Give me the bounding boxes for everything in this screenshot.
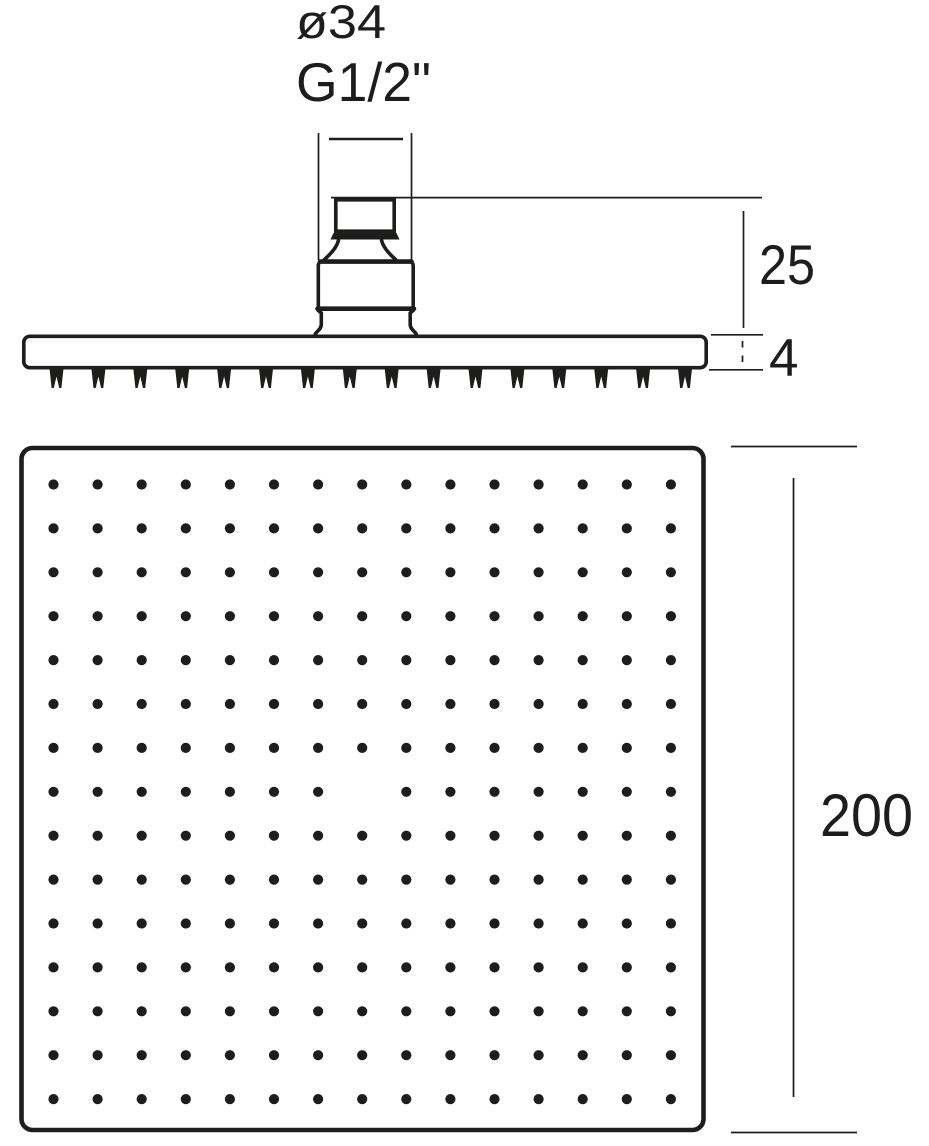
thread-nipple	[336, 200, 394, 231]
spray-hole	[181, 831, 191, 841]
spray-hole	[313, 1094, 323, 1104]
spray-hole	[181, 743, 191, 753]
spray-hole	[48, 1006, 58, 1016]
spray-hole	[313, 787, 323, 797]
spray-hole	[225, 699, 235, 709]
spray-hole	[225, 611, 235, 621]
spray-hole	[269, 831, 279, 841]
spray-hole	[269, 479, 279, 489]
spray-hole	[225, 523, 235, 533]
spray-hole	[622, 479, 632, 489]
spray-hole	[489, 962, 499, 972]
spray-hole	[137, 479, 147, 489]
spray-hole	[666, 831, 676, 841]
spray-hole	[401, 523, 411, 533]
spray-hole	[534, 875, 544, 885]
spray-hole	[445, 611, 455, 621]
spray-hole	[357, 1050, 367, 1060]
nozzle	[175, 369, 189, 389]
spray-hole	[269, 699, 279, 709]
spray-hole	[622, 831, 632, 841]
spray-hole	[666, 611, 676, 621]
spray-hole	[489, 1050, 499, 1060]
spray-hole	[489, 1006, 499, 1016]
spray-hole	[578, 699, 588, 709]
spray-hole	[137, 918, 147, 928]
drawing-canvas: ø34 G1/2" 25 4 200	[0, 0, 929, 1146]
nozzle	[301, 369, 315, 389]
spray-hole	[578, 479, 588, 489]
spray-hole	[489, 918, 499, 928]
spray-hole	[622, 1050, 632, 1060]
spray-hole	[48, 655, 58, 665]
spray-hole	[622, 962, 632, 972]
spray-hole	[578, 611, 588, 621]
spray-hole	[93, 523, 103, 533]
spray-hole	[445, 918, 455, 928]
plate-thickness-label: 4	[769, 329, 798, 388]
spray-hole	[225, 918, 235, 928]
spray-hole	[225, 1094, 235, 1104]
spray-hole	[666, 875, 676, 885]
spray-hole	[622, 1006, 632, 1016]
spray-hole	[181, 787, 191, 797]
spray-hole	[489, 787, 499, 797]
spray-hole	[93, 787, 103, 797]
diameter-extension-lines	[319, 133, 412, 260]
technical-drawing: ø34 G1/2" 25 4 200	[0, 0, 929, 1146]
spray-hole	[225, 875, 235, 885]
spray-hole	[357, 567, 367, 577]
spray-hole	[269, 787, 279, 797]
spray-hole	[269, 523, 279, 533]
base-shoulder-right	[411, 262, 413, 307]
spray-hole	[48, 611, 58, 621]
spray-hole	[93, 962, 103, 972]
spray-hole	[489, 479, 499, 489]
spray-hole	[48, 523, 58, 533]
spray-hole	[534, 1006, 544, 1016]
spray-hole	[401, 743, 411, 753]
base-shoulder-left	[318, 262, 320, 307]
spray-hole	[313, 523, 323, 533]
spray-hole	[225, 743, 235, 753]
spray-hole	[225, 479, 235, 489]
base-foot-left	[315, 311, 321, 335]
spray-hole	[666, 1094, 676, 1104]
spray-hole	[48, 743, 58, 753]
spray-hole	[48, 875, 58, 885]
spray-hole	[401, 699, 411, 709]
spray-hole	[313, 699, 323, 709]
spray-hole	[622, 743, 632, 753]
spray-hole	[445, 743, 455, 753]
spray-hole	[578, 875, 588, 885]
spray-hole	[401, 918, 411, 928]
spray-hole	[48, 479, 58, 489]
spray-hole	[48, 1050, 58, 1060]
spray-hole	[489, 567, 499, 577]
spray-hole	[622, 875, 632, 885]
spray-hole	[666, 962, 676, 972]
spray-hole	[269, 611, 279, 621]
spray-hole	[93, 1050, 103, 1060]
spray-hole	[445, 787, 455, 797]
spray-hole	[578, 962, 588, 972]
spray-hole	[225, 1006, 235, 1016]
spray-hole	[401, 611, 411, 621]
spray-hole	[313, 831, 323, 841]
spray-hole	[445, 1094, 455, 1104]
nozzle	[385, 369, 399, 389]
nozzle	[510, 369, 524, 389]
spray-hole	[489, 699, 499, 709]
spray-plate-side	[24, 336, 706, 367]
spray-hole	[401, 1050, 411, 1060]
spray-hole	[401, 567, 411, 577]
thread-label: G1/2"	[296, 51, 431, 113]
spray-hole	[48, 962, 58, 972]
nozzle	[469, 369, 483, 389]
spray-hole	[578, 1006, 588, 1016]
spray-hole	[622, 1094, 632, 1104]
spray-hole	[181, 611, 191, 621]
spray-hole	[137, 962, 147, 972]
spray-hole	[489, 655, 499, 665]
spray-hole	[534, 655, 544, 665]
spray-hole	[93, 918, 103, 928]
spray-hole	[401, 787, 411, 797]
spray-hole	[357, 743, 367, 753]
spray-hole	[445, 567, 455, 577]
spray-hole	[666, 1006, 676, 1016]
spray-hole	[534, 523, 544, 533]
spray-hole	[622, 523, 632, 533]
spray-hole	[269, 962, 279, 972]
spray-hole	[534, 743, 544, 753]
spray-hole	[137, 699, 147, 709]
spray-hole	[137, 831, 147, 841]
spray-hole	[313, 1050, 323, 1060]
spray-hole	[578, 1094, 588, 1104]
spray-hole	[445, 699, 455, 709]
spray-hole	[489, 743, 499, 753]
spray-hole	[578, 655, 588, 665]
spray-face-outline	[22, 448, 704, 1130]
nozzle	[678, 369, 692, 389]
spray-hole	[269, 1050, 279, 1060]
spray-hole	[401, 655, 411, 665]
thread-flange	[331, 233, 400, 240]
plan-view	[22, 447, 858, 1133]
spray-hole	[666, 743, 676, 753]
spray-hole	[137, 567, 147, 577]
spray-hole	[401, 962, 411, 972]
spray-hole	[534, 479, 544, 489]
nozzle	[552, 369, 566, 389]
spray-hole	[181, 962, 191, 972]
spray-hole	[48, 787, 58, 797]
spray-hole	[445, 479, 455, 489]
spray-hole	[401, 831, 411, 841]
spray-hole	[269, 875, 279, 885]
spray-hole	[534, 567, 544, 577]
spray-hole	[445, 523, 455, 533]
spray-hole	[181, 523, 191, 533]
dimension-4	[709, 335, 763, 370]
spray-hole	[445, 831, 455, 841]
spray-hole	[313, 479, 323, 489]
spray-hole	[137, 1006, 147, 1016]
spray-hole	[357, 611, 367, 621]
spray-hole	[401, 1006, 411, 1016]
connector-height-label: 25	[759, 233, 815, 296]
nozzle	[594, 369, 608, 389]
spray-hole	[666, 567, 676, 577]
spray-hole	[357, 699, 367, 709]
spray-hole	[137, 787, 147, 797]
spray-hole	[313, 1006, 323, 1016]
nozzle	[133, 369, 147, 389]
spray-hole	[269, 1006, 279, 1016]
spray-hole	[357, 962, 367, 972]
spray-hole	[137, 875, 147, 885]
spray-hole	[181, 1094, 191, 1104]
spray-hole	[622, 567, 632, 577]
spray-hole	[578, 743, 588, 753]
spray-hole	[93, 655, 103, 665]
plate-width-label: 200	[820, 782, 913, 849]
spray-hole	[225, 831, 235, 841]
spray-hole	[181, 1050, 191, 1060]
spray-hole	[93, 875, 103, 885]
spray-hole	[48, 1094, 58, 1104]
spray-hole	[445, 1050, 455, 1060]
spray-hole	[137, 1094, 147, 1104]
spray-hole	[225, 962, 235, 972]
spray-hole	[534, 918, 544, 928]
spray-hole	[489, 1094, 499, 1104]
spray-hole	[578, 523, 588, 533]
spray-hole	[137, 743, 147, 753]
spray-hole	[489, 875, 499, 885]
spray-hole	[489, 831, 499, 841]
nozzle	[636, 369, 650, 389]
spray-hole	[578, 831, 588, 841]
spray-hole	[445, 962, 455, 972]
skirt-right	[382, 240, 396, 260]
spray-hole	[357, 918, 367, 928]
spray-hole	[666, 1050, 676, 1060]
spray-hole	[578, 918, 588, 928]
spray-hole	[357, 1006, 367, 1016]
spray-hole	[181, 1006, 191, 1016]
spray-hole	[666, 479, 676, 489]
spray-hole	[357, 1094, 367, 1104]
spray-hole	[181, 655, 191, 665]
base-foot-right	[410, 311, 416, 335]
nozzle	[427, 369, 441, 389]
spray-hole	[313, 918, 323, 928]
spray-hole	[622, 918, 632, 928]
spray-hole	[357, 523, 367, 533]
spray-hole	[534, 962, 544, 972]
spray-hole	[666, 787, 676, 797]
spray-hole	[269, 655, 279, 665]
side-view	[24, 133, 763, 388]
spray-hole	[578, 1050, 588, 1060]
spray-hole	[269, 743, 279, 753]
spray-hole	[225, 567, 235, 577]
spray-hole	[578, 787, 588, 797]
spray-hole	[269, 567, 279, 577]
spray-hole	[534, 611, 544, 621]
nozzle	[50, 369, 64, 389]
spray-hole	[137, 523, 147, 533]
spray-hole	[534, 699, 544, 709]
spray-hole	[622, 787, 632, 797]
spray-hole	[313, 655, 323, 665]
spray-hole	[93, 1006, 103, 1016]
spray-hole-grid	[48, 479, 676, 1104]
spray-hole	[445, 875, 455, 885]
nozzle	[91, 369, 105, 389]
nozzle	[343, 369, 357, 389]
spray-hole	[313, 962, 323, 972]
nozzle-row	[50, 369, 693, 389]
spray-hole	[181, 875, 191, 885]
spray-hole	[93, 567, 103, 577]
spray-hole	[622, 699, 632, 709]
spray-hole	[225, 655, 235, 665]
spray-hole	[269, 1094, 279, 1104]
spray-hole	[225, 787, 235, 797]
spray-hole	[534, 1094, 544, 1104]
spray-hole	[578, 567, 588, 577]
diameter-label: ø34	[296, 0, 386, 48]
spray-hole	[93, 611, 103, 621]
spray-hole	[313, 567, 323, 577]
spray-hole	[137, 655, 147, 665]
connector	[315, 200, 416, 334]
spray-hole	[48, 699, 58, 709]
spray-hole	[48, 918, 58, 928]
spray-hole	[534, 831, 544, 841]
spray-hole	[48, 831, 58, 841]
spray-hole	[357, 479, 367, 489]
spray-hole	[357, 831, 367, 841]
spray-hole	[181, 567, 191, 577]
spray-hole	[666, 523, 676, 533]
nozzle	[217, 369, 231, 389]
spray-hole	[622, 655, 632, 665]
spray-hole	[93, 1094, 103, 1104]
spray-hole	[137, 611, 147, 621]
spray-hole	[666, 699, 676, 709]
spray-hole	[313, 611, 323, 621]
spray-hole	[225, 1050, 235, 1060]
nozzle	[259, 369, 273, 389]
spray-hole	[445, 1006, 455, 1016]
spray-hole	[401, 875, 411, 885]
spray-hole	[357, 655, 367, 665]
spray-hole	[313, 743, 323, 753]
spray-hole	[93, 699, 103, 709]
spray-hole	[93, 743, 103, 753]
spray-hole	[401, 479, 411, 489]
spray-hole	[181, 699, 191, 709]
spray-hole	[93, 831, 103, 841]
spray-hole	[489, 523, 499, 533]
spray-hole	[534, 1050, 544, 1060]
spray-hole	[181, 918, 191, 928]
spray-hole	[666, 655, 676, 665]
spray-hole	[622, 611, 632, 621]
spray-hole	[93, 479, 103, 489]
spray-hole	[401, 1094, 411, 1104]
spray-hole	[445, 655, 455, 665]
spray-hole	[666, 918, 676, 928]
spray-hole	[313, 875, 323, 885]
spray-hole	[269, 918, 279, 928]
spray-hole	[357, 875, 367, 885]
spray-hole	[534, 787, 544, 797]
spray-hole	[137, 1050, 147, 1060]
spray-hole	[489, 611, 499, 621]
spray-hole	[48, 567, 58, 577]
spray-hole	[181, 479, 191, 489]
skirt-left	[325, 240, 339, 260]
